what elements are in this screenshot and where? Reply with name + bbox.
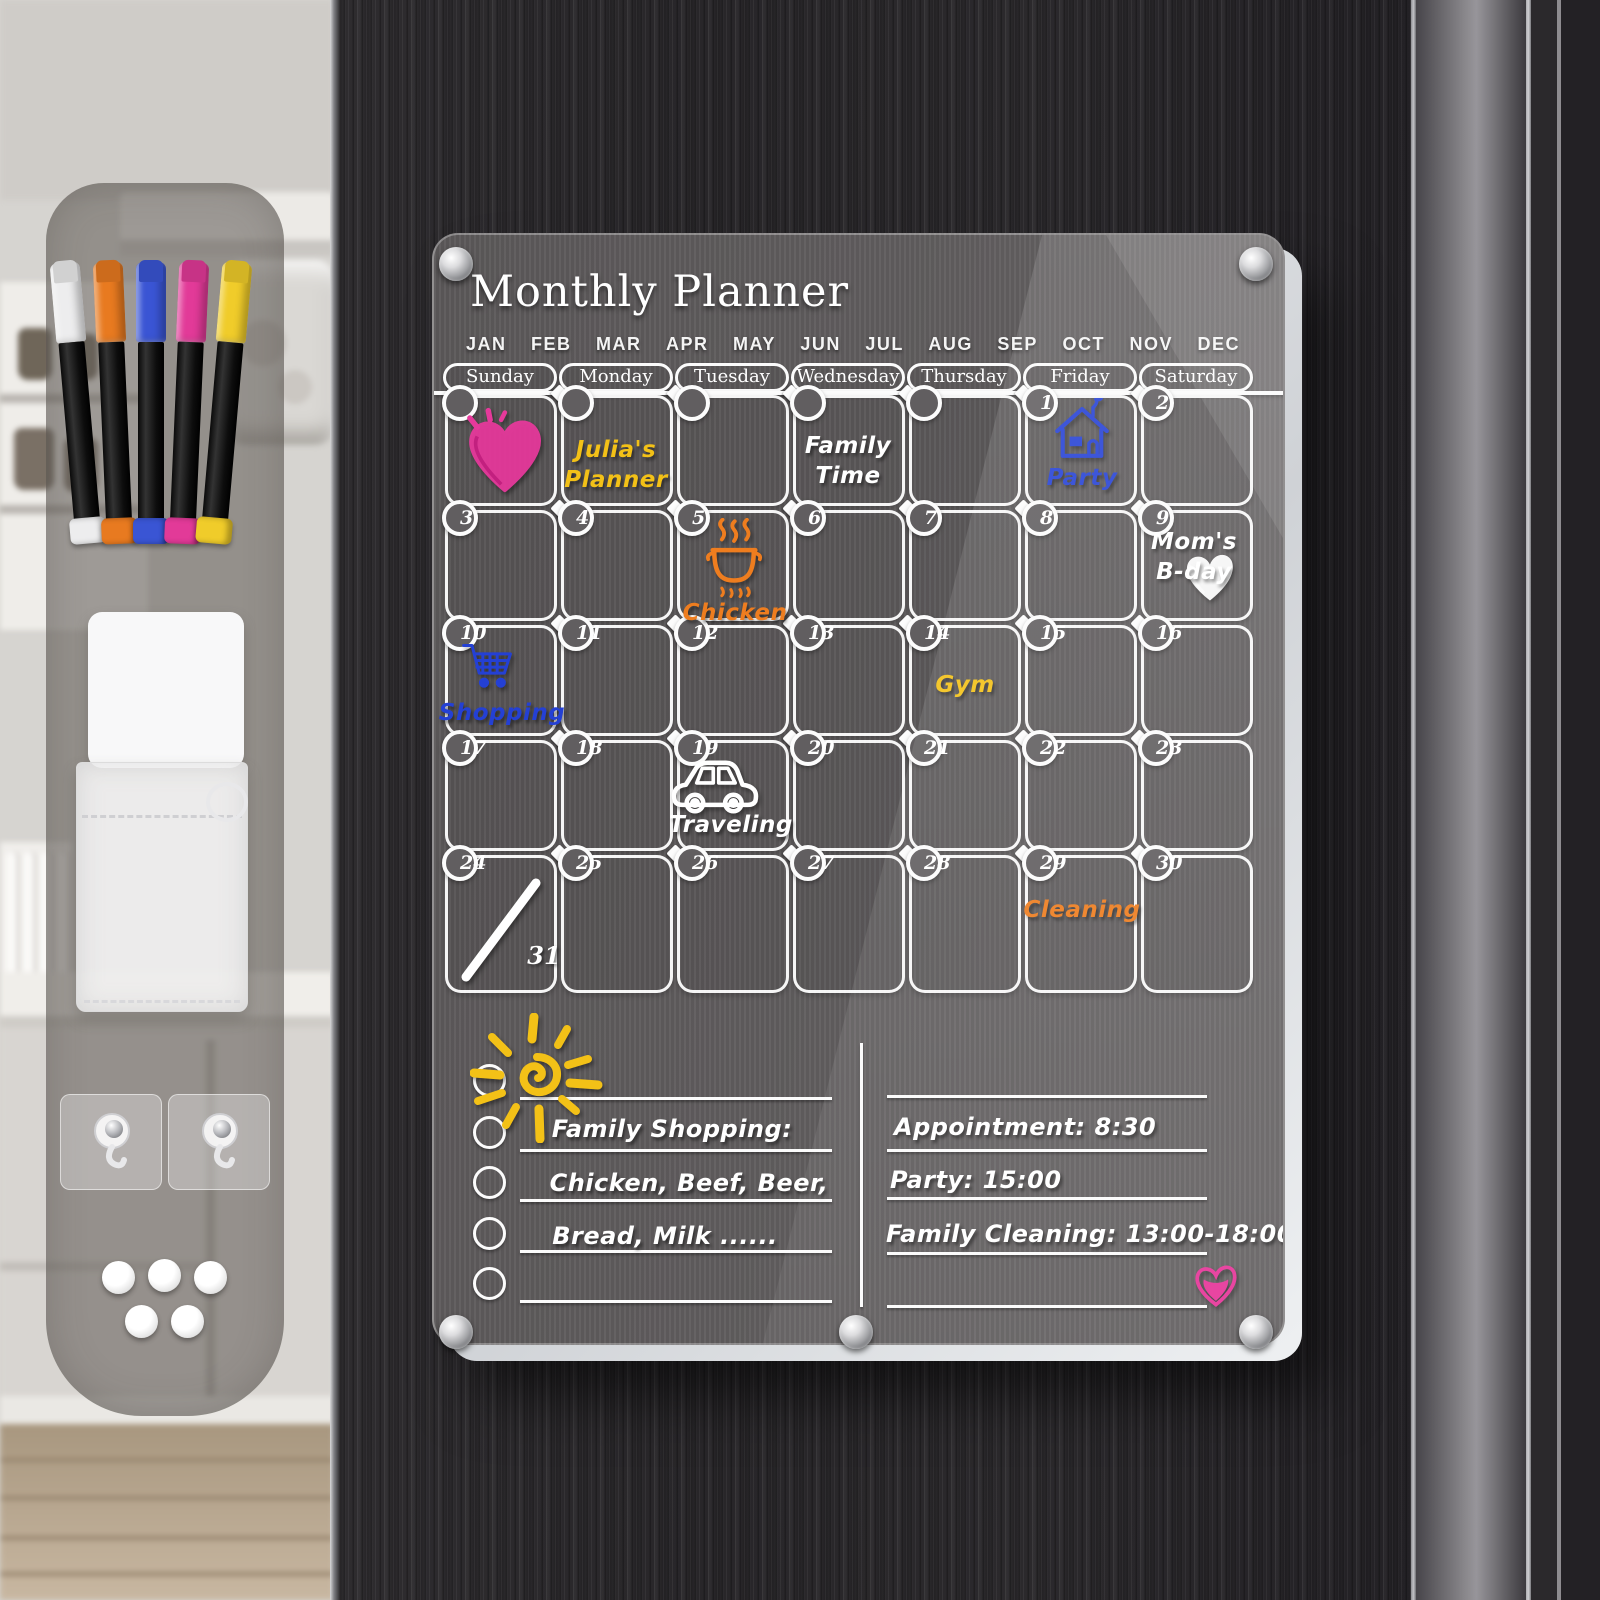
- marker-cap-tip: [181, 260, 206, 283]
- month-label: DEC: [1197, 334, 1240, 355]
- months-row: JANFEBMARAPRMAYJUNJULAUGSEPOCTNOVDEC: [466, 334, 1240, 355]
- date-circle: 22: [1022, 730, 1058, 766]
- entry-text: Gym: [815, 670, 1115, 700]
- date-number: 22: [1040, 734, 1066, 762]
- date-number: 20: [808, 734, 834, 762]
- hook-icon: [195, 1109, 245, 1173]
- round-magnet: [102, 1261, 135, 1294]
- date-circle: 30: [1138, 845, 1174, 881]
- entry-text: Traveling: [581, 810, 881, 840]
- corner-screw: [1239, 1315, 1273, 1349]
- date-circle: 25: [558, 845, 594, 881]
- house-icon: [1046, 398, 1118, 460]
- shopping-list-item: Chicken, Beef, Beer,: [529, 1169, 849, 1197]
- note-line: [887, 1095, 1207, 1098]
- pouch-stitching: [84, 1000, 240, 1003]
- date-number: 6: [808, 504, 821, 532]
- corner-screw: [839, 1315, 873, 1349]
- date-number: 14: [924, 619, 950, 647]
- hook-icon: [87, 1109, 137, 1173]
- date-number: 27: [808, 849, 834, 877]
- month-label: MAR: [596, 334, 642, 355]
- car-icon: [665, 750, 767, 814]
- entry-text: Mom's B-day: [1044, 527, 1285, 587]
- note-line: [520, 1250, 832, 1253]
- checklist-circle: [473, 1166, 506, 1199]
- date-circle: 29: [1022, 845, 1058, 881]
- month-label: AUG: [928, 334, 973, 355]
- adhesive-hook: [168, 1094, 270, 1190]
- floor-plank-line: [0, 1458, 334, 1462]
- date-number: 21: [924, 734, 950, 762]
- marker-endcap: [195, 516, 233, 545]
- fridge-edge-highlight: [330, 0, 339, 1600]
- kitchen-wall: [0, 0, 334, 200]
- date-circle: 2: [1138, 385, 1174, 421]
- date-number: 15: [1040, 619, 1066, 647]
- fridge-side: [1561, 0, 1600, 1600]
- date-number: 29: [1040, 849, 1066, 877]
- marker-cap-tip: [139, 260, 163, 282]
- date-circle: 4: [558, 500, 594, 536]
- date-circle: 7: [906, 500, 942, 536]
- pen-pouch-flap: [88, 612, 244, 768]
- note-line: [887, 1197, 1207, 1200]
- entry-text: Chicken: [585, 598, 885, 628]
- date-circle: 18: [558, 730, 594, 766]
- date-number: 4: [576, 504, 589, 532]
- marker-cap-tip: [224, 260, 250, 284]
- date-circle: 6: [790, 500, 826, 536]
- entry-text: Shopping: [432, 698, 652, 728]
- date-number: 2: [1156, 389, 1169, 417]
- marker-body: [98, 341, 132, 520]
- date-number: 17: [460, 734, 486, 762]
- marker-cap-tip: [96, 260, 121, 283]
- entry-text: Party: [932, 463, 1232, 493]
- date-number: 26: [692, 849, 718, 877]
- date-circle: 16: [1138, 615, 1174, 651]
- date-circle: [790, 385, 826, 421]
- marker-body: [170, 341, 204, 520]
- note-line: [520, 1300, 832, 1303]
- date-circle: 17: [442, 730, 478, 766]
- round-magnet: [125, 1305, 158, 1338]
- entry-text: Cleaning: [932, 895, 1232, 925]
- notes-divider: [860, 1043, 863, 1307]
- fridge-handle-panel: [1416, 0, 1526, 1600]
- floor-plank-line: [0, 1496, 334, 1500]
- round-magnet: [148, 1259, 181, 1292]
- month-label: MAY: [733, 334, 776, 355]
- round-magnet: [194, 1261, 227, 1294]
- month-label: OCT: [1062, 334, 1105, 355]
- month-label: APR: [666, 334, 709, 355]
- pouch-button: [206, 782, 248, 822]
- blue-marker: [135, 262, 167, 550]
- note-line: [520, 1199, 832, 1202]
- date-circle: 20: [790, 730, 826, 766]
- date-circle: 23: [1138, 730, 1174, 766]
- adhesive-hook: [60, 1094, 162, 1190]
- month-label: NOV: [1129, 334, 1173, 355]
- shopping-list-item: Bread, Milk ......: [505, 1222, 825, 1250]
- product-photo-scene: Monthly Planner JANFEBMARAPRMAYJUNJULAUG…: [0, 0, 1600, 1600]
- date-circle: [674, 385, 710, 421]
- date-number: 7: [924, 504, 937, 532]
- date-circle: 15: [1022, 615, 1058, 651]
- month-label: FEB: [531, 334, 572, 355]
- date-number: 18: [576, 734, 602, 762]
- marker-body: [138, 342, 164, 520]
- month-label: JAN: [466, 334, 507, 355]
- schedule-item: Party: 15:00: [890, 1166, 1062, 1194]
- heart-note-icon: [1188, 1259, 1244, 1311]
- floor-plank-line: [0, 1536, 334, 1540]
- month-label: SEP: [997, 334, 1038, 355]
- corner-screw: [439, 247, 473, 281]
- round-magnet: [171, 1305, 204, 1338]
- overflow-date-31: 31: [522, 941, 566, 970]
- floor-plank-line: [0, 1572, 334, 1576]
- marker-cap-tip: [52, 260, 78, 284]
- note-line: [887, 1252, 1207, 1255]
- corner-screw: [1239, 247, 1273, 281]
- shopping-list-item: Family Shopping:: [512, 1115, 832, 1143]
- date-circle: 26: [674, 845, 710, 881]
- date-number: 30: [1156, 849, 1182, 877]
- date-circle: 14: [906, 615, 942, 651]
- date-number: 28: [924, 849, 950, 877]
- month-label: JUN: [800, 334, 841, 355]
- date-circle: [558, 385, 594, 421]
- month-label: JUL: [865, 334, 904, 355]
- note-line: [520, 1149, 832, 1152]
- cooking-pot-icon: [696, 518, 772, 602]
- date-number: 16: [1156, 619, 1182, 647]
- date-number: 25: [576, 849, 602, 877]
- checklist-circle: [473, 1267, 506, 1300]
- monthly-planner-board: Monthly Planner JANFEBMARAPRMAYJUNJULAUG…: [432, 233, 1285, 1345]
- note-line: [887, 1149, 1207, 1152]
- date-circle: 21: [906, 730, 942, 766]
- schedule-item: Family Cleaning: 13:00-18:00: [886, 1220, 1285, 1248]
- checklist-circle: [473, 1217, 506, 1250]
- date-number: 23: [1156, 734, 1182, 762]
- date-circle: 28: [906, 845, 942, 881]
- date-number: 3: [460, 504, 473, 532]
- board-title: Monthly Planner: [470, 267, 890, 317]
- fridge-gap: [1531, 0, 1557, 1600]
- schedule-item: Appointment: 8:30: [894, 1113, 1156, 1141]
- shopping-cart-icon: [460, 639, 520, 697]
- date-circle: 3: [442, 500, 478, 536]
- date-circle: [906, 385, 942, 421]
- corner-screw: [439, 1315, 473, 1349]
- date-circle: 27: [790, 845, 826, 881]
- note-line: [887, 1305, 1207, 1308]
